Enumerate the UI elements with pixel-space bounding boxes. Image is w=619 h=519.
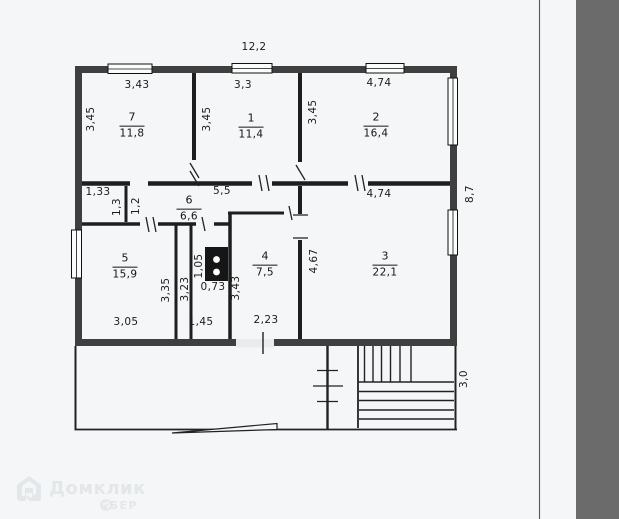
room-5-number: 5: [113, 253, 138, 268]
dim-stove-height: 1,05: [193, 254, 205, 279]
dim-room1-side: 3,45: [201, 107, 213, 132]
room-6-number: 6: [177, 195, 202, 210]
room-1-area: 11,4: [239, 127, 264, 140]
watermark-brand: Домклик: [49, 478, 146, 499]
dim-room7-top: 3,43: [125, 79, 150, 91]
dim-porch-depth: 3,0: [458, 370, 470, 388]
entrance-door-swing: [172, 424, 277, 434]
room-1-number: 1: [239, 113, 264, 128]
house-icon: [14, 474, 44, 506]
room-1-label: 1 11,4: [239, 108, 264, 141]
room-4-number: 4: [253, 251, 278, 266]
room-7-label: 7 11,8: [120, 107, 145, 140]
staircase: [358, 346, 454, 428]
dim-room3-top: 4,74: [367, 188, 392, 200]
watermark-subbrand: СБЕР: [100, 499, 138, 512]
door-threshold: [236, 339, 274, 348]
dim-stove-width: 0,73: [201, 281, 226, 293]
room-6-label: 6 6,6: [177, 190, 202, 223]
stove: [205, 247, 228, 281]
dim-room5-side: 3,35: [160, 278, 172, 303]
dim-room3-side: 4,67: [308, 249, 320, 274]
check-circle-icon: [100, 499, 112, 511]
dim-room7-side: 3,45: [85, 107, 97, 132]
room-5-area: 15,9: [113, 267, 138, 280]
dim-utility-bottom: 1,45: [189, 316, 214, 328]
domclick-watermark: Домклик СБЕР: [12, 470, 182, 515]
room-2-label: 2 16,4: [364, 107, 389, 140]
dim-room1-top: 3,3: [234, 79, 252, 91]
room-6-area: 6,6: [177, 209, 202, 222]
dim-overall-width: 12,2: [242, 41, 267, 53]
scanned-floor-plan-page: 12,2 8,7 3,0 3,43 3,45 3,3 3,45 4,74 3,4…: [0, 0, 619, 519]
room-7-number: 7: [120, 112, 145, 127]
room-5-label: 5 15,9: [113, 248, 138, 281]
room-3-area: 22,1: [373, 265, 398, 278]
dim-shaft-height: 3,23: [179, 277, 191, 302]
dim-hall-width: 1,33: [86, 186, 111, 198]
dim-room6-top: 5,5: [213, 185, 231, 197]
room-3-number: 3: [373, 251, 398, 266]
dim-room4-side: 3,43: [230, 276, 242, 301]
dim-room5-bottom: 3,05: [114, 316, 139, 328]
room-4-area: 7,5: [253, 265, 278, 278]
dim-hall-left: 1,3: [111, 198, 123, 216]
dim-room2-top: 4,74: [367, 77, 392, 89]
room-2-number: 2: [364, 112, 389, 127]
room-3-label: 3 22,1: [373, 246, 398, 279]
room-7-area: 11,8: [120, 126, 145, 139]
room-2-area: 16,4: [364, 126, 389, 139]
dim-room2-side: 3,45: [307, 100, 319, 125]
dim-overall-height: 8,7: [464, 185, 476, 203]
room-4-label: 4 7,5: [253, 246, 278, 279]
dim-hall-right: 1,2: [130, 197, 142, 215]
dim-room4-bottom: 2,23: [254, 314, 279, 326]
